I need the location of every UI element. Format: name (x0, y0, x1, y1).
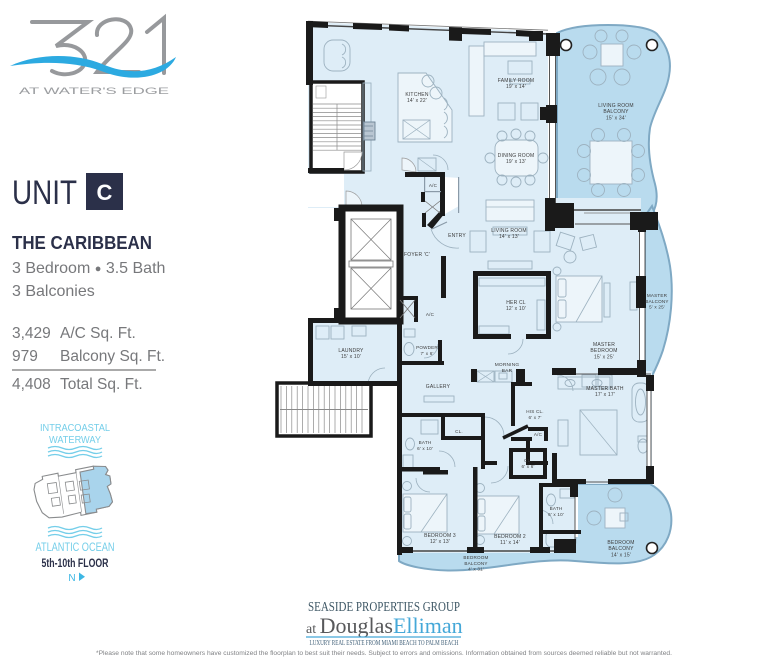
svg-text:3 Balconies: 3 Balconies (12, 283, 95, 300)
svg-text:HER CL12' x 10': HER CL12' x 10' (506, 300, 526, 312)
svg-text:N: N (68, 573, 75, 584)
svg-text:LAUNDRY15' x 10': LAUNDRY15' x 10' (338, 348, 364, 360)
svg-text:*Please note that some homeown: *Please note that some homeowners have c… (96, 650, 672, 657)
svg-text:A/C: A/C (426, 312, 435, 317)
svg-text:INTRACOASTAL: INTRACOASTAL (40, 422, 110, 434)
svg-text:A/C Sq. Ft.: A/C Sq. Ft. (60, 325, 136, 342)
svg-text:BATH6' x 10': BATH6' x 10' (417, 440, 433, 451)
svg-text:ATLANTIC OCEAN: ATLANTIC OCEAN (36, 542, 115, 554)
svg-text:AT WATER'S EDGE: AT WATER'S EDGE (19, 86, 169, 97)
svg-text:Total Sq. Ft.: Total Sq. Ft. (60, 376, 143, 393)
svg-text:5th-10th FLOOR: 5th-10th FLOOR (42, 558, 110, 570)
svg-text:SEASIDE PROPERTIES GROUP: SEASIDE PROPERTIES GROUP (308, 599, 460, 614)
svg-text:at DouglasElliman: at DouglasElliman (306, 613, 463, 638)
svg-text:A/C: A/C (429, 183, 438, 188)
svg-text:CL.: CL. (455, 429, 463, 434)
svg-text:FOYER 'C': FOYER 'C' (404, 252, 430, 258)
svg-text:WATERWAY: WATERWAY (49, 434, 101, 446)
svg-text:THE CARIBBEAN: THE CARIBBEAN (12, 233, 152, 253)
svg-text:4,408: 4,408 (12, 376, 51, 393)
svg-text:HIS CL.6' x 7': HIS CL.6' x 7' (526, 409, 543, 420)
svg-text:C: C (97, 180, 113, 205)
svg-text:ENTRY: ENTRY (448, 233, 466, 239)
svg-text:BEDROOMBALCONY14' x 15': BEDROOMBALCONY14' x 15' (607, 540, 634, 558)
svg-text:GALLERY: GALLERY (426, 384, 451, 390)
svg-text:979: 979 (12, 348, 38, 365)
svg-text:3,429: 3,429 (12, 325, 51, 342)
svg-text:MASTERBEDROOM15' x 25': MASTERBEDROOM15' x 25' (590, 342, 617, 360)
svg-text:BATH6' x 10': BATH6' x 10' (548, 506, 564, 517)
svg-text:LUXURY REAL ESTATE FROM MIAMI: LUXURY REAL ESTATE FROM MIAMI BEACH TO P… (310, 640, 459, 647)
svg-text:A/C: A/C (534, 432, 543, 437)
svg-text:KITCHEN14' x 22': KITCHEN14' x 22' (405, 92, 429, 104)
svg-text:UNIT: UNIT (12, 174, 77, 212)
svg-text:3 Bedroom ● 3.5 Bath: 3 Bedroom ● 3.5 Bath (12, 260, 165, 277)
svg-text:Balcony Sq. Ft.: Balcony Sq. Ft. (60, 348, 165, 365)
